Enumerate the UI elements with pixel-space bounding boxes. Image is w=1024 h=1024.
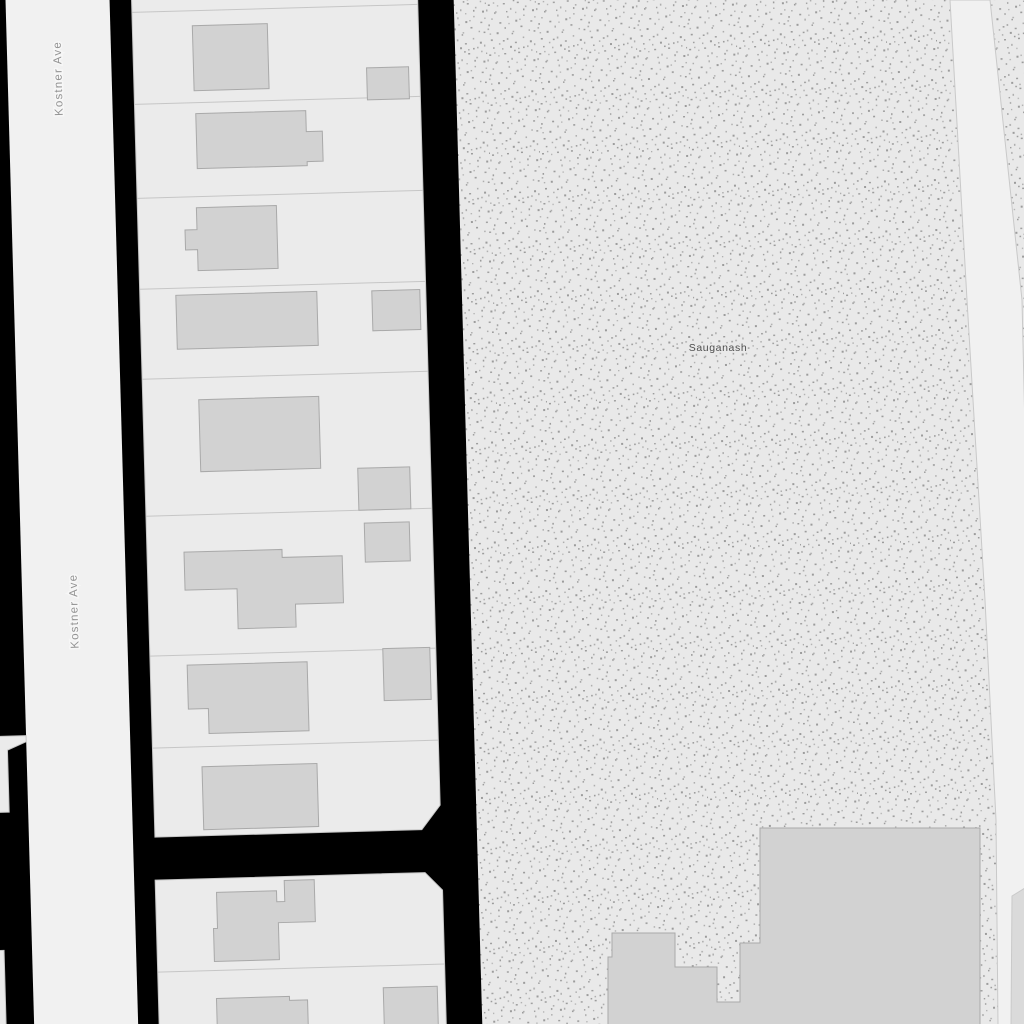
map-canvas[interactable]: Kostner Ave Kostner Ave Sauganash (0, 0, 1024, 1024)
building (383, 647, 431, 700)
building (367, 67, 410, 100)
building (199, 396, 321, 471)
building (358, 467, 411, 510)
building (192, 24, 269, 91)
roadside-strip (1011, 888, 1024, 1024)
building (176, 291, 318, 349)
building (372, 289, 421, 330)
area-label: Sauganash (689, 342, 748, 354)
building (184, 205, 278, 271)
street-label: Kostner Ave (68, 574, 82, 649)
building (364, 522, 410, 562)
building (196, 110, 323, 168)
building (216, 996, 309, 1024)
building (202, 764, 319, 830)
building (383, 986, 439, 1024)
street-label: Kostner Ave (52, 41, 66, 116)
